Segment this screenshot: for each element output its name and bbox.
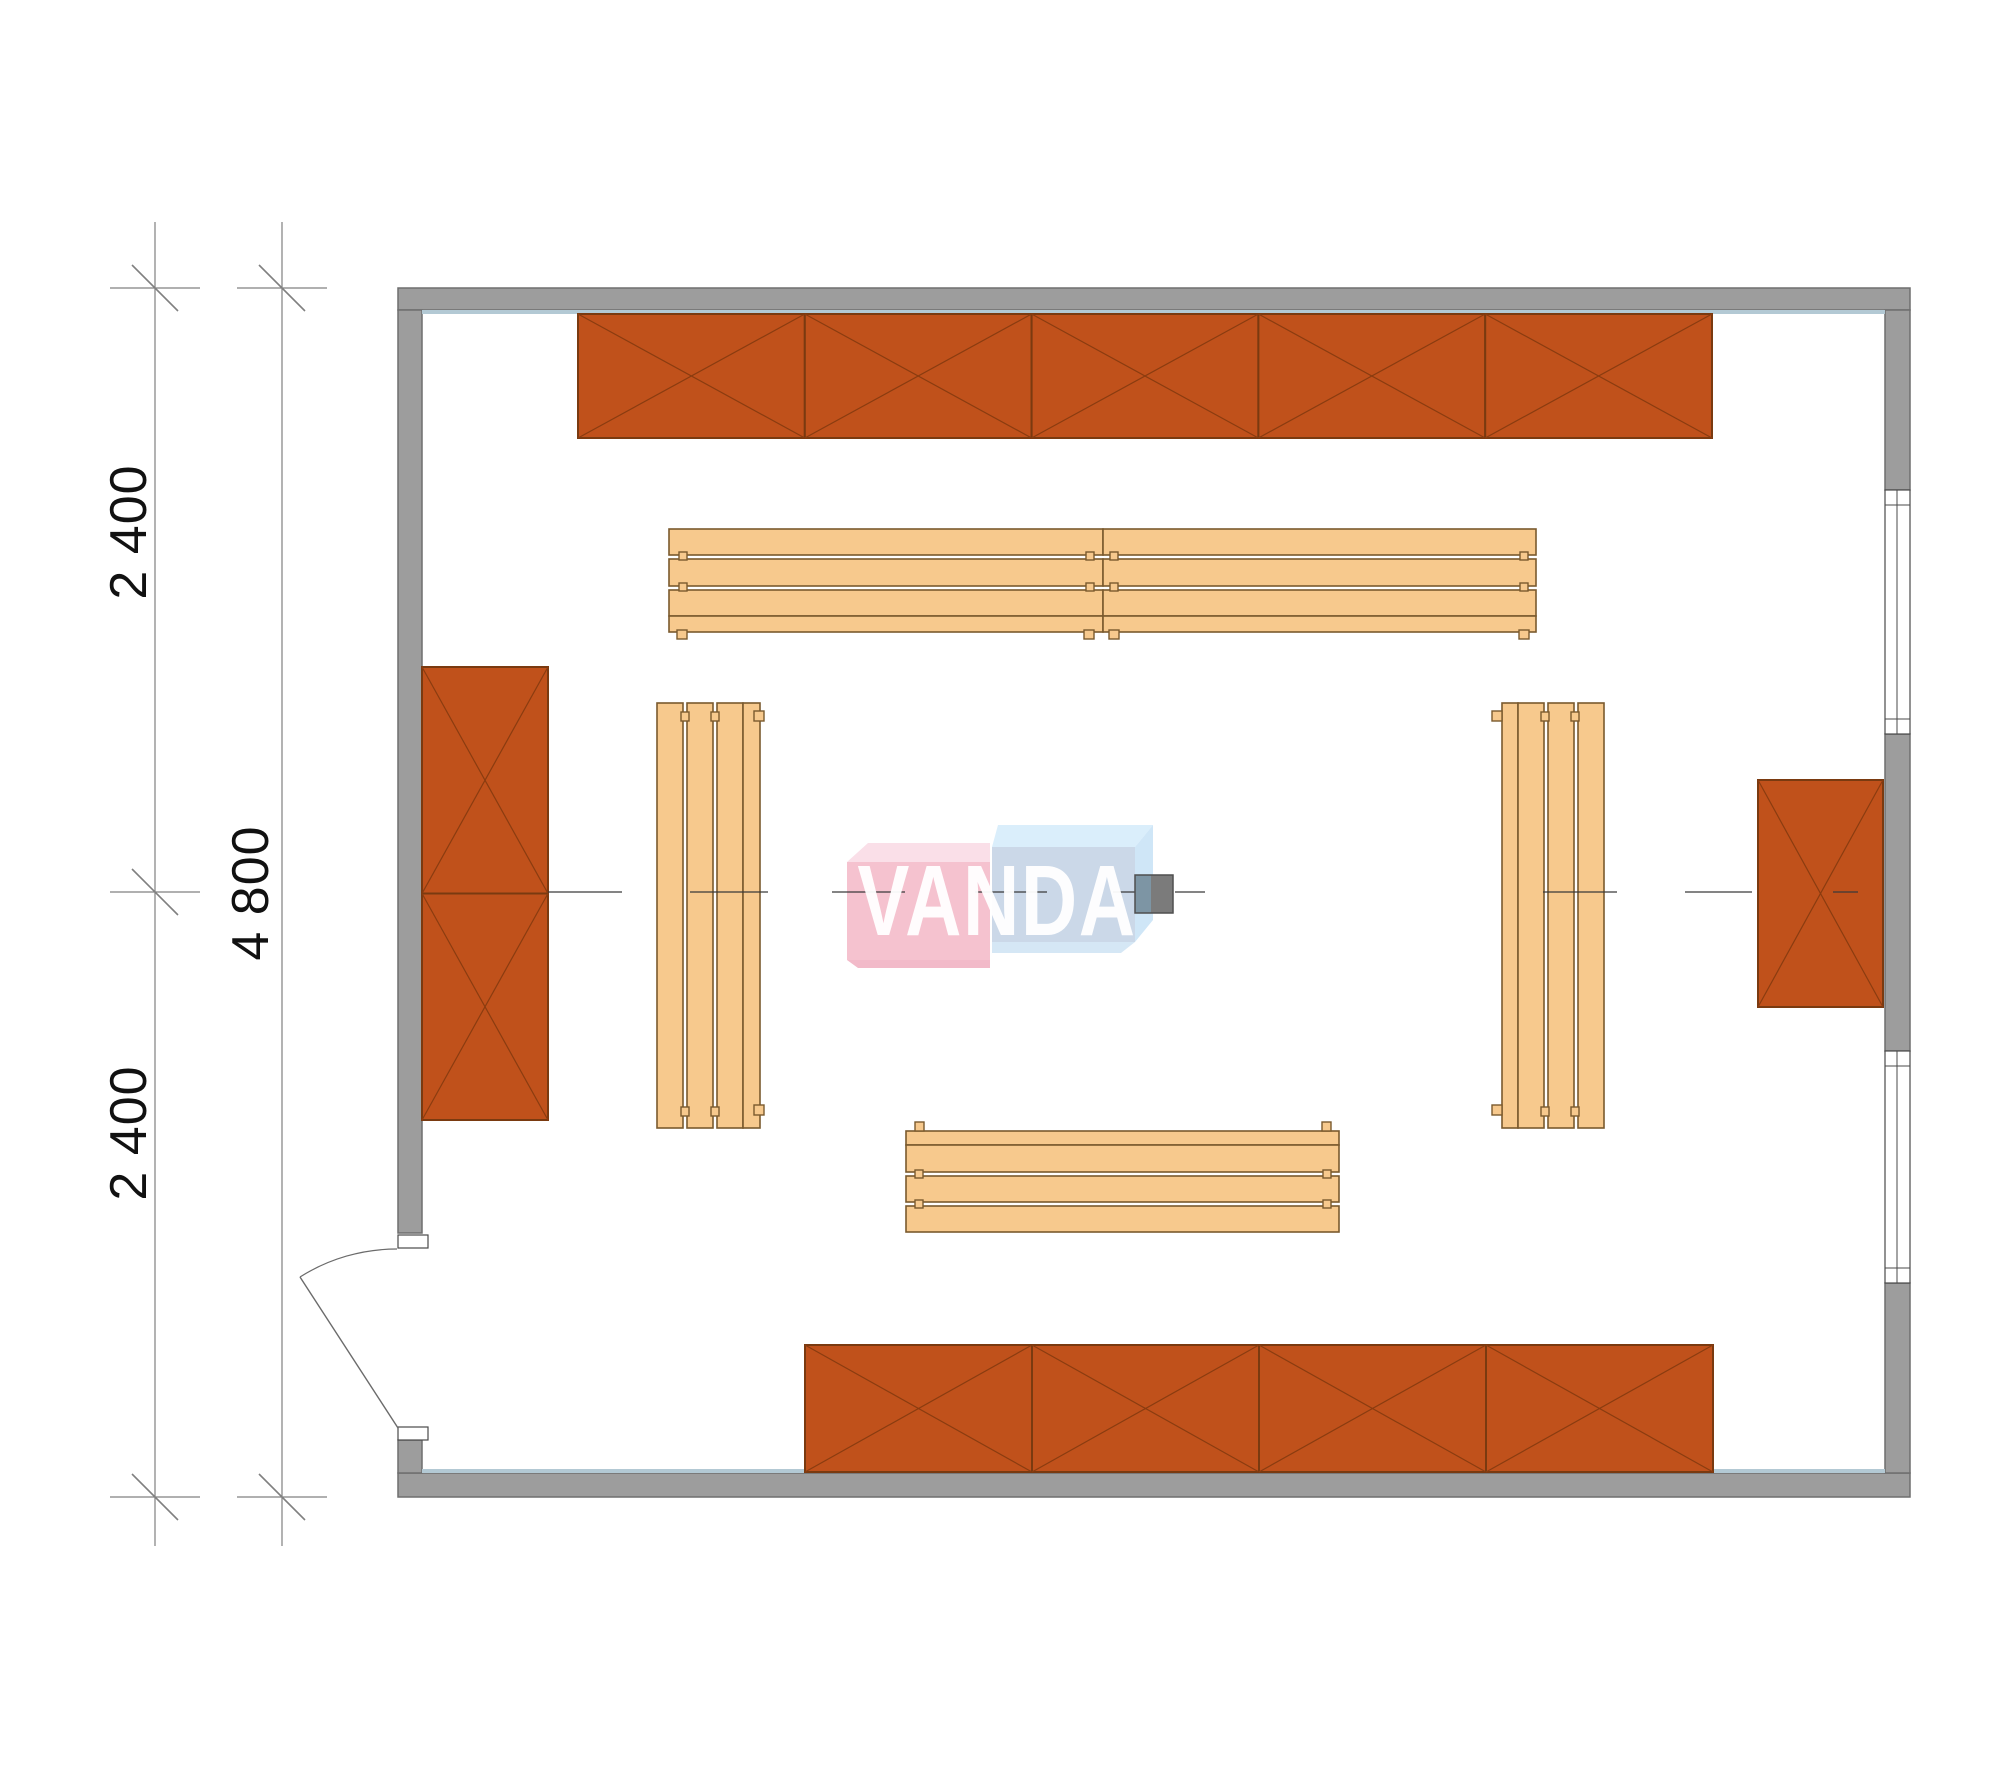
- bench-top-right-peg: [1110, 552, 1118, 560]
- bench-top-left-slat: [669, 616, 1103, 632]
- bench-top-left-peg: [1084, 630, 1094, 639]
- bench-top-left-peg: [677, 630, 687, 639]
- door-swing-arc: [300, 1249, 397, 1277]
- bench-right-slat: [1578, 703, 1604, 1128]
- bench-left-peg: [754, 1105, 764, 1115]
- bench-right-peg: [1492, 1105, 1502, 1115]
- bench-top-right-slat: [1103, 590, 1536, 616]
- bench-right-peg: [1492, 711, 1502, 721]
- watermark-pink-cube-bottom: [847, 960, 990, 968]
- door-jamb: [398, 1427, 428, 1440]
- bench-bottom-slat: [906, 1176, 1339, 1202]
- bench-left-peg: [711, 712, 719, 721]
- column-marker-left: [1135, 875, 1151, 913]
- bench-bottom-peg: [915, 1170, 923, 1178]
- dimension-label-4800: 4 800: [221, 825, 281, 960]
- bench-top-right-peg: [1520, 583, 1528, 591]
- door-leaf: [300, 1277, 398, 1428]
- bench-top-left-peg: [1086, 552, 1094, 560]
- bench-right-peg: [1571, 712, 1579, 721]
- bench-left-peg: [711, 1107, 719, 1116]
- bench-top-right-peg: [1519, 630, 1529, 639]
- wall-right-lower: [1885, 1283, 1910, 1473]
- bench-right-slat: [1548, 703, 1574, 1128]
- bench-left-slat: [657, 703, 683, 1128]
- bench-left-slat: [717, 703, 743, 1128]
- wall-left-upper: [398, 310, 422, 1233]
- bench-bottom-peg: [1323, 1170, 1331, 1178]
- bench-right-slat: [1502, 703, 1518, 1128]
- bench-top-left-peg: [679, 583, 687, 591]
- wall-top: [398, 288, 1910, 310]
- wall-right-upper: [1885, 310, 1910, 490]
- bench-left-peg: [754, 711, 764, 721]
- bench-top-right-peg: [1110, 583, 1118, 591]
- bench-left-peg: [681, 712, 689, 721]
- bench-top-right-peg: [1520, 552, 1528, 560]
- bench-left-slat: [687, 703, 713, 1128]
- bench-top-left-peg: [1086, 583, 1094, 591]
- vanda-watermark-text: VANDA: [857, 844, 1136, 959]
- bench-right-peg: [1541, 1107, 1549, 1116]
- bench-top-left-slat: [669, 559, 1103, 586]
- floor-plan-canvas: 2 400 2 400 4 800 VANDA: [0, 0, 2000, 1786]
- wall-bottom: [398, 1473, 1910, 1497]
- bench-top-left-slat: [669, 529, 1103, 555]
- bench-top-right-peg: [1109, 630, 1119, 639]
- bench-bottom-slat: [906, 1206, 1339, 1232]
- wall-left-lower: [398, 1440, 422, 1473]
- bench-top-left-peg: [679, 552, 687, 560]
- bench-bottom-peg: [1322, 1122, 1331, 1131]
- wall-right-middle: [1885, 734, 1910, 1051]
- bench-bottom-peg: [915, 1200, 923, 1208]
- dimension-label-2400-upper: 2 400: [99, 464, 159, 599]
- bench-bottom-slat: [906, 1145, 1339, 1172]
- dimension-label-2400-lower: 2 400: [99, 1065, 159, 1200]
- bench-left-peg: [681, 1107, 689, 1116]
- bench-top-left-slat: [669, 590, 1103, 616]
- column-marker-right: [1151, 875, 1173, 913]
- bench-top-right-slat: [1103, 616, 1536, 632]
- bench-top-right-slat: [1103, 529, 1536, 555]
- bench-bottom-slat: [906, 1131, 1339, 1145]
- bench-bottom-peg: [915, 1122, 924, 1131]
- bench-right-peg: [1571, 1107, 1579, 1116]
- bench-top-right-slat: [1103, 559, 1536, 586]
- bench-left-slat: [743, 703, 760, 1128]
- bench-right-peg: [1541, 712, 1549, 721]
- bench-bottom-peg: [1323, 1200, 1331, 1208]
- bench-right-slat: [1518, 703, 1544, 1128]
- door-jamb: [398, 1235, 428, 1248]
